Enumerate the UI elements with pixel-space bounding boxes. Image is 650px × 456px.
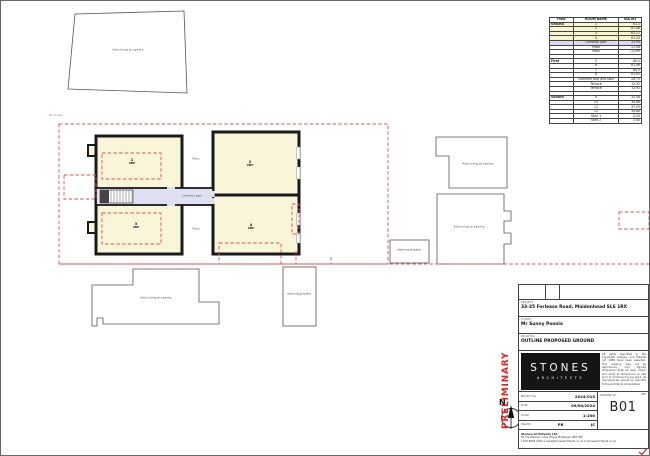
common-part-label: Common part (182, 194, 201, 197)
adjoining-label-right-bottom: Adjoining property (453, 225, 484, 228)
copyright-disclaimer: All rights described in the Copyright, D… (600, 351, 648, 391)
right-block (213, 132, 299, 254)
adjoining-outline-top-left (68, 11, 187, 93)
client-name: Mr Sunny Poonia (521, 322, 646, 327)
room-label-3: 3 2BP (133, 222, 140, 230)
practice-contact: t 020 8848 1000 e mail@stonesarchitects.… (521, 440, 646, 443)
revision-strip (519, 285, 648, 300)
project-title: 33-35 Forlease Road, Maidenhead SL6 1RX (521, 305, 646, 310)
area-table-body: Ground161.1267.06361.17467.03Common part… (550, 22, 642, 123)
adjoining-label-top-left: Adjoining property (112, 48, 143, 51)
stair (100, 190, 133, 203)
red-check-mark (639, 449, 647, 455)
stones-architects-logo: STONES ARCHITECTS (521, 353, 600, 390)
revision-number: B01 (600, 400, 646, 415)
room-label-2: 2 2BP (247, 160, 254, 168)
adjoining-label-mid-right: Adjoining property (397, 250, 421, 253)
footer-section: Stones Architects Ltd 50 Coldharbour Lan… (519, 430, 648, 447)
room-label-4: 4 2BP (248, 223, 255, 231)
scale-field: SCALE 1:200 (519, 411, 597, 421)
area-schedule-table: Floor ROOM NAME GIA m2 Ground161.1267.06… (549, 17, 642, 124)
project-section: PROJECT 33-35 Forlease Road, Maidenhead … (519, 300, 648, 317)
adjoining-label-right-top: Adjoining property (462, 162, 493, 165)
date-field: DATE 09/04/2024 (519, 402, 597, 412)
drawing-section: DRAWING OUTLINE PROPOSED GROUND (519, 334, 648, 351)
boundary-label: Boundary (49, 114, 63, 117)
checked-initials: JC (591, 422, 595, 427)
practice-name: Stones Architects Ltd (521, 432, 646, 436)
client-section: CLIENT Mr Sunny Poonia (519, 317, 648, 334)
practice-address: 50 Coldharbour Lane Hayes Middlesex UB3 … (521, 436, 646, 439)
patio-label-bottom: Patio (192, 227, 199, 230)
adjoining-outline-bottom-small (283, 267, 316, 326)
project-label: PROJECT (521, 301, 646, 304)
drawn-field: DRAWN PR JC (519, 421, 597, 430)
drawing-no-label: DRAWING No (600, 394, 616, 397)
adjoining-label-bottom-small: Adjoining property (287, 294, 311, 297)
room-label-1: 1 2BP (129, 158, 136, 166)
fields-section: PROJECT No 2024-015 DATE 09/04/2024 SCAL… (519, 392, 648, 430)
project-no-field: PROJECT No 2024-015 (519, 392, 597, 402)
table-row: Stair 21.40 (550, 119, 642, 124)
logo-text-main: STONES (530, 362, 591, 374)
revision-field: DRAWING No REV B01 (598, 392, 648, 429)
adjoining-label-bottom-left: Adjoining property (140, 296, 171, 299)
drawing-title: OUTLINE PROPOSED GROUND (521, 339, 646, 344)
logo-section: STONES ARCHITECTS All rights described i… (519, 351, 648, 392)
drawing-label: DRAWING (521, 335, 646, 338)
logo-text-sub: ARCHITECTS (537, 376, 584, 380)
preliminary-stamp: PRELIMINARY (501, 327, 511, 429)
patio-label-top: Patio (192, 157, 199, 160)
drawing-sheet: N Boundary Adjoining property Adjoining … (0, 0, 650, 456)
title-block: PROJECT 33-35 Forlease Road, Maidenhead … (518, 284, 649, 449)
client-label: CLIENT (521, 318, 646, 321)
rev-label: REV (641, 393, 646, 396)
adjoining-outline-right-bottom (437, 194, 511, 264)
